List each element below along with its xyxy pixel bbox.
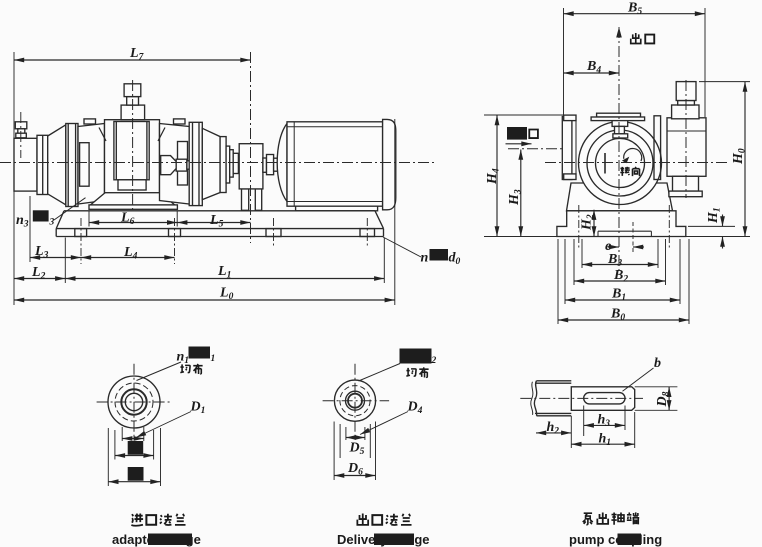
svg-text:d0: d0 (449, 251, 461, 268)
svg-text:n3: n3 (16, 213, 29, 230)
svg-text:L0: L0 (219, 286, 234, 303)
svg-text:2: 2 (431, 356, 437, 366)
svg-text:D8: D8 (655, 391, 672, 407)
svg-text:L4: L4 (123, 245, 138, 262)
svg-text:pump coupling: pump coupling (569, 532, 662, 547)
svg-text:L5: L5 (209, 213, 224, 230)
svg-text:H0: H0 (731, 148, 748, 165)
svg-text:B2: B2 (613, 268, 628, 285)
svg-text:L2: L2 (31, 265, 46, 282)
svg-text:B5: B5 (627, 1, 642, 18)
svg-text:H4: H4 (485, 168, 502, 185)
svg-text:H3: H3 (507, 189, 524, 206)
svg-text:B1: B1 (611, 287, 626, 304)
svg-text:L7: L7 (129, 46, 145, 63)
svg-text:B0: B0 (610, 307, 625, 324)
svg-text:L6: L6 (120, 211, 135, 228)
svg-text:h2: h2 (547, 420, 560, 437)
svg-text:B4: B4 (586, 59, 601, 76)
svg-text:h1: h1 (599, 432, 612, 449)
svg-text:b: b (654, 356, 661, 371)
svg-text:L3: L3 (34, 244, 49, 261)
svg-text:D4: D4 (407, 400, 423, 417)
svg-text:3: 3 (49, 218, 55, 228)
svg-text:n: n (421, 251, 429, 266)
svg-text:D6: D6 (347, 461, 363, 478)
svg-text:h3: h3 (598, 413, 611, 430)
svg-text:L1: L1 (217, 264, 231, 281)
svg-text:D5: D5 (349, 441, 365, 458)
svg-text:B3: B3 (607, 252, 622, 269)
svg-text:1: 1 (211, 354, 216, 364)
svg-text:D1: D1 (190, 400, 206, 417)
svg-text:n1: n1 (177, 350, 190, 367)
svg-text:H1: H1 (706, 207, 723, 224)
